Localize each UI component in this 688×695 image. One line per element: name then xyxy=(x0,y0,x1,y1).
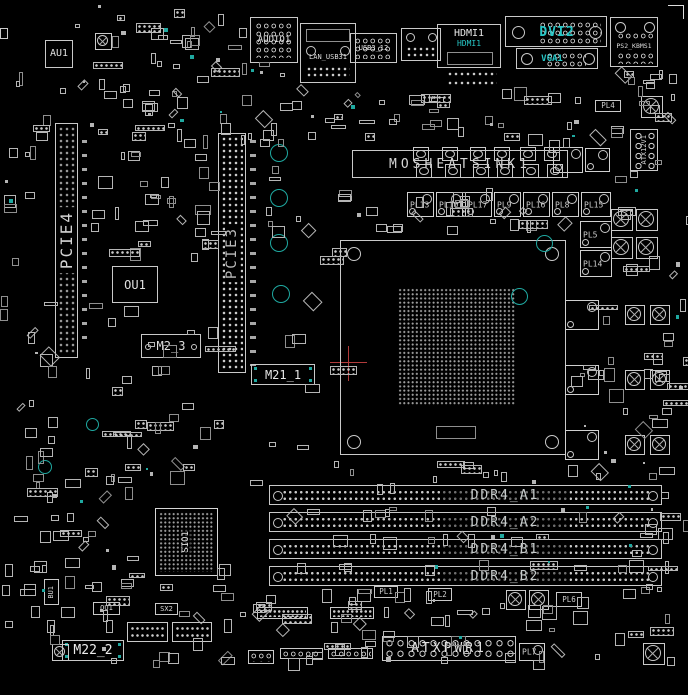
smd-component xyxy=(383,537,397,550)
smd-component xyxy=(40,531,52,543)
mosfet xyxy=(520,147,536,161)
solder-pad xyxy=(532,480,536,484)
smd-component xyxy=(649,473,657,480)
smd-component xyxy=(48,417,58,428)
smd-component xyxy=(383,631,395,637)
pin-header-small xyxy=(85,468,99,477)
smd-component xyxy=(4,204,17,213)
smd-component xyxy=(528,605,541,618)
smd-component xyxy=(213,585,226,592)
smd-component xyxy=(657,587,662,592)
smd-component xyxy=(322,589,332,603)
pin-header-small xyxy=(320,256,344,265)
via-teal xyxy=(80,500,83,503)
via-teal xyxy=(251,69,254,72)
smd-component xyxy=(288,658,300,672)
smd-component xyxy=(446,645,452,656)
smd-component xyxy=(370,534,376,544)
smd-component xyxy=(296,84,309,97)
smd-component xyxy=(494,470,498,476)
pin-header-small xyxy=(214,420,224,429)
plated-hole xyxy=(511,288,528,305)
smd-component xyxy=(120,86,127,93)
smd-component xyxy=(2,585,10,596)
smd-component xyxy=(184,139,195,147)
smd-component xyxy=(242,95,252,106)
smd-component xyxy=(416,197,424,208)
socket-keyout xyxy=(436,426,476,439)
solder-pad xyxy=(491,535,496,540)
capacitor-ring xyxy=(652,307,666,321)
smd-component xyxy=(65,576,75,588)
solder-pad xyxy=(112,565,117,570)
smd-component xyxy=(240,612,246,618)
pcie3-label-wrap: PCIE3 xyxy=(219,134,245,372)
smd-component xyxy=(426,591,432,604)
smd-component xyxy=(363,510,372,522)
smd-component xyxy=(36,132,48,141)
smd-component xyxy=(365,641,376,647)
mosfet xyxy=(473,164,489,178)
inductor-pl4[interactable]: PL4 xyxy=(595,100,621,112)
smd-component xyxy=(228,45,243,50)
smd-component xyxy=(663,333,675,341)
smd-component xyxy=(483,472,489,478)
smd-component xyxy=(99,490,112,503)
via-teal xyxy=(676,315,679,318)
smd-component xyxy=(683,520,688,532)
pin-header-small xyxy=(27,488,58,497)
via-teal xyxy=(572,135,574,137)
pin-header-small xyxy=(421,94,451,102)
pin-header-small xyxy=(93,62,123,69)
solder-pad xyxy=(386,657,391,662)
smd-component xyxy=(665,614,670,624)
lan-usb-connector[interactable]: LAN_USB31 xyxy=(300,23,356,83)
smd-component xyxy=(31,606,40,618)
smd-component xyxy=(574,565,588,571)
smd-component xyxy=(33,474,44,483)
smd-component xyxy=(30,146,36,160)
capacitor-ring xyxy=(638,211,654,227)
smd-component xyxy=(500,603,506,609)
smd-component xyxy=(29,400,34,407)
bu1-label: BU1 xyxy=(48,586,55,599)
smd-component xyxy=(190,35,200,46)
dimm-label: DDR4_A1 xyxy=(440,486,570,504)
via-teal xyxy=(146,468,149,471)
dimm-label: DDR4_B1 xyxy=(440,540,570,558)
pin-header-small xyxy=(663,400,688,407)
smd-component xyxy=(589,128,607,146)
smd-component xyxy=(271,123,277,136)
smd-component xyxy=(97,516,110,529)
dimm-label: DDR4_A2 xyxy=(440,513,570,531)
smd-component xyxy=(112,36,118,48)
au1-chip[interactable]: AU1 xyxy=(45,40,73,68)
smd-component xyxy=(208,327,218,339)
smd-component xyxy=(428,537,436,544)
pin-row xyxy=(447,71,497,78)
smd-component xyxy=(242,63,247,75)
via-teal xyxy=(220,111,222,113)
smd-component xyxy=(662,408,671,415)
smd-component xyxy=(25,428,37,438)
smd-component xyxy=(25,192,35,199)
pin-header-small xyxy=(655,113,672,122)
smd-component xyxy=(111,658,117,665)
pin-header-small xyxy=(660,513,680,521)
usb-header[interactable] xyxy=(127,622,168,642)
via-teal xyxy=(459,636,462,639)
smd-component xyxy=(425,565,435,576)
atx12v-label: ATX12V1 xyxy=(641,135,648,165)
solder-pad xyxy=(260,71,262,73)
smd-component xyxy=(557,216,572,231)
dimm-slot-a1[interactable]: DDR4_A1 xyxy=(269,485,662,505)
via-teal xyxy=(635,189,638,192)
smd-component xyxy=(211,231,226,236)
smd-component xyxy=(121,583,132,589)
smd-component xyxy=(170,471,185,485)
mosfet xyxy=(497,164,513,178)
socket-mount-hole xyxy=(545,435,559,449)
smd-component xyxy=(106,620,113,633)
lan-usb-label: LAN_USB31 xyxy=(301,50,355,64)
smd-component xyxy=(89,303,102,309)
smd-component xyxy=(40,448,53,457)
smd-component xyxy=(443,534,448,547)
sio1-label: SIO1 xyxy=(182,529,191,555)
smd-component xyxy=(122,376,132,384)
smd-component xyxy=(77,79,88,90)
smd-component xyxy=(272,226,285,237)
capacitor-ring xyxy=(54,646,65,657)
smd-component xyxy=(567,122,572,130)
pin-header-small xyxy=(106,596,130,606)
smd-component xyxy=(551,643,566,658)
smd-component xyxy=(350,469,354,476)
smd-component xyxy=(195,228,205,238)
pin-header-small xyxy=(348,601,361,610)
smd-component xyxy=(655,371,667,382)
smd-component xyxy=(118,477,132,483)
smd-component xyxy=(354,92,361,99)
capacitor-ring xyxy=(638,239,654,255)
smd-component xyxy=(621,210,630,220)
smd-component xyxy=(1,296,8,308)
smd-component xyxy=(623,408,628,415)
pin-header-small xyxy=(437,102,450,108)
smd-component xyxy=(158,35,169,40)
smd-component xyxy=(86,368,90,379)
smd-component xyxy=(325,118,336,123)
ps2-connector[interactable]: PS2_KBMS1 xyxy=(610,17,658,67)
smd-component xyxy=(99,79,105,90)
inductor-label: PL7 xyxy=(522,648,536,657)
sio1-chip[interactable]: SIO1 xyxy=(155,508,218,576)
dimm-slot-a2[interactable]: DDR4_A2 xyxy=(269,512,662,532)
smd-component xyxy=(158,366,170,375)
mount-post xyxy=(428,33,437,42)
smd-component xyxy=(65,479,81,488)
inductor-pl8[interactable]: PL8 xyxy=(552,192,579,217)
smd-component xyxy=(177,97,188,109)
smd-component xyxy=(334,461,339,468)
smd-component xyxy=(389,119,397,125)
pin-header-small xyxy=(282,614,312,624)
pin-header-small xyxy=(589,305,618,311)
smd-component xyxy=(609,389,624,402)
smd-component xyxy=(209,182,219,191)
smd-component xyxy=(568,465,579,477)
solder-pad xyxy=(561,508,565,512)
smd-component xyxy=(182,403,195,409)
smd-component xyxy=(0,309,8,322)
dimm-slot-b2[interactable]: DDR4_B2 xyxy=(269,566,662,586)
smd-component xyxy=(445,615,449,627)
usb-pin-row xyxy=(406,46,438,57)
inductor-pl15[interactable]: PL15 xyxy=(581,192,611,217)
pcie3-slot[interactable]: PCIE3 xyxy=(218,133,246,373)
via-teal xyxy=(628,485,631,488)
atx12v-connector[interactable]: ATX12V1 xyxy=(630,129,658,171)
pin-header-small xyxy=(450,208,473,217)
dvi-connector[interactable]: DVI2 xyxy=(505,16,607,47)
smd-component xyxy=(266,207,272,216)
smd-component xyxy=(292,101,302,109)
smd-component xyxy=(173,64,180,70)
capacitor-ring xyxy=(508,592,522,606)
hdmi-label: HDMI1 xyxy=(438,28,500,39)
via-teal xyxy=(164,28,168,32)
inductor-pl14[interactable]: PL14 xyxy=(580,250,612,277)
via-teal xyxy=(42,589,45,592)
smd-component xyxy=(629,560,645,573)
smd-component xyxy=(505,653,516,663)
smd-component xyxy=(88,531,96,536)
board-corner-mark xyxy=(0,28,8,39)
smd-component xyxy=(649,256,659,270)
ps2-pin-row xyxy=(617,32,653,41)
solder-pad xyxy=(651,508,653,510)
latch-hole xyxy=(648,545,658,555)
smd-component xyxy=(659,467,675,475)
smd-component xyxy=(549,628,555,632)
usb-stack-connector[interactable]: USB3_12 xyxy=(350,33,397,63)
smd-component xyxy=(177,129,182,142)
smd-component xyxy=(422,124,435,130)
m21-1-connector[interactable]: M21_1 xyxy=(251,364,315,385)
bu1-label-wrap: BU1 xyxy=(45,580,58,604)
fan-header[interactable] xyxy=(248,650,274,664)
capacitor-ring xyxy=(613,239,629,255)
smd-component xyxy=(669,270,678,279)
smd-component xyxy=(199,167,209,178)
smd-component xyxy=(75,24,80,28)
smd-component xyxy=(106,476,114,485)
smd-component xyxy=(30,566,40,571)
smd-component xyxy=(603,316,609,325)
smd-component xyxy=(618,565,626,573)
audio-jack-connector[interactable]: AUDIO1 xyxy=(250,17,298,63)
smd-component xyxy=(595,654,600,661)
vga-connector[interactable]: VGA1 xyxy=(516,48,598,69)
sx2-label: SX2 xyxy=(156,604,177,614)
pin-header-small xyxy=(667,383,688,390)
atx12v-label-wrap: ATX12V1 xyxy=(631,130,657,170)
solder-pad xyxy=(311,115,313,117)
usb-connector-2[interactable] xyxy=(401,28,441,61)
latch-hole xyxy=(273,545,283,555)
sx2-chip[interactable]: SX2 xyxy=(155,603,178,615)
pin-header-small xyxy=(628,631,645,638)
pin-header-small xyxy=(648,566,679,572)
smd-component xyxy=(302,292,322,312)
smd-component xyxy=(250,480,263,487)
smd-component xyxy=(153,660,160,668)
solder-pad xyxy=(98,5,101,8)
smd-component xyxy=(187,330,195,335)
smd-component xyxy=(527,220,531,233)
smd-component xyxy=(596,473,601,480)
pin-header-small xyxy=(135,125,164,131)
smd-component xyxy=(168,123,175,128)
pin-header-small xyxy=(160,584,173,591)
pin-header-small xyxy=(33,125,50,132)
smd-component xyxy=(195,154,207,161)
smd-component xyxy=(224,619,232,633)
ou1-chip[interactable]: OU1 xyxy=(112,266,158,303)
mosfet xyxy=(442,147,458,161)
smd-component xyxy=(296,216,301,222)
smd-component xyxy=(604,368,615,381)
inductor-label: PL16 xyxy=(526,200,545,209)
solder-pad xyxy=(584,425,586,427)
screw-post xyxy=(512,26,525,39)
smd-component xyxy=(161,177,168,188)
smd-component xyxy=(5,564,13,577)
hdmi-port-outline xyxy=(447,52,493,65)
smd-component xyxy=(638,86,642,97)
smd-component xyxy=(341,614,352,624)
pin-header-small xyxy=(129,573,145,579)
inductor-pl5[interactable]: PL5 xyxy=(580,221,612,248)
screw-post xyxy=(521,53,533,65)
pin-header-small xyxy=(117,15,126,21)
solder-pad xyxy=(193,445,197,449)
inductor-label: PL8 xyxy=(555,200,569,209)
au1-chip-label: AU1 xyxy=(46,41,72,67)
socket-mount-hole xyxy=(347,435,361,449)
smd-component xyxy=(643,80,656,84)
cpu-socket[interactable] xyxy=(340,240,566,455)
smd-component xyxy=(463,645,471,654)
inductor-pl16[interactable]: PL16 xyxy=(523,192,550,217)
smd-component xyxy=(331,125,346,129)
smd-component xyxy=(104,91,117,99)
smd-component xyxy=(169,414,179,423)
bu1-chip[interactable]: BU1 xyxy=(44,579,59,605)
capacitor-ring xyxy=(627,372,641,386)
smd-component xyxy=(526,620,542,631)
smd-component xyxy=(61,607,74,618)
smd-component xyxy=(669,74,676,84)
smd-component xyxy=(135,221,149,232)
pin-header-small xyxy=(683,357,688,366)
via-teal xyxy=(180,119,183,122)
pin-header-small xyxy=(147,422,174,431)
latch-hole xyxy=(273,518,283,528)
hdmi-connector[interactable]: HDMI1 HDMI1 xyxy=(437,24,501,68)
smd-component xyxy=(533,660,545,670)
smd-component xyxy=(379,100,385,105)
smd-component xyxy=(167,198,177,204)
smd-component xyxy=(149,90,160,96)
dvi-label: DVI2 xyxy=(528,25,586,40)
pin-header-small xyxy=(365,133,375,142)
pcie3-side-pads xyxy=(250,140,256,366)
pin-header-small xyxy=(504,133,520,141)
audio-label: AUDIO1 xyxy=(251,18,297,62)
smd-component xyxy=(221,657,235,665)
smd-component xyxy=(425,510,433,522)
smd-component xyxy=(333,535,348,547)
smd-component xyxy=(611,128,623,138)
lan-port-outline xyxy=(306,29,350,42)
header-pins xyxy=(175,625,209,639)
pcie4-slot[interactable]: PCIE4 xyxy=(55,123,78,358)
pcie4-label: PCIE4 xyxy=(59,207,75,273)
capacitor-ring xyxy=(645,645,661,661)
smd-component xyxy=(125,487,134,501)
solder-pad xyxy=(611,459,615,463)
smd-component xyxy=(16,81,21,87)
smd-component xyxy=(630,171,639,178)
socket-mount-hole xyxy=(347,247,361,261)
smd-component xyxy=(390,483,395,494)
smd-component xyxy=(40,354,53,367)
smd-component xyxy=(482,608,489,615)
smd-component xyxy=(608,357,614,365)
smd-component xyxy=(168,653,179,664)
smd-component xyxy=(583,365,596,370)
mosfet xyxy=(470,147,486,161)
vga-label: VGA1 xyxy=(535,53,569,66)
latch-hole xyxy=(273,572,283,582)
smd-component xyxy=(269,442,275,447)
dimm-slot-b1[interactable]: DDR4_B1 xyxy=(269,539,662,559)
smd-component xyxy=(98,176,113,189)
smd-component xyxy=(573,611,589,624)
smd-component xyxy=(404,608,415,619)
capacitor-ring xyxy=(627,437,641,451)
pin-header-small xyxy=(536,534,549,540)
smd-component xyxy=(490,219,496,224)
smd-component xyxy=(151,53,156,64)
pin-header-small xyxy=(332,248,347,256)
smd-component xyxy=(640,533,653,538)
smd-component xyxy=(667,657,675,666)
smd-component xyxy=(200,427,212,440)
smd-component xyxy=(124,306,139,316)
solder-pad xyxy=(5,180,7,182)
smd-component xyxy=(433,476,437,483)
smd-component xyxy=(179,611,191,616)
smd-component xyxy=(361,647,368,658)
smd-component xyxy=(639,101,650,106)
smd-component xyxy=(191,253,198,262)
